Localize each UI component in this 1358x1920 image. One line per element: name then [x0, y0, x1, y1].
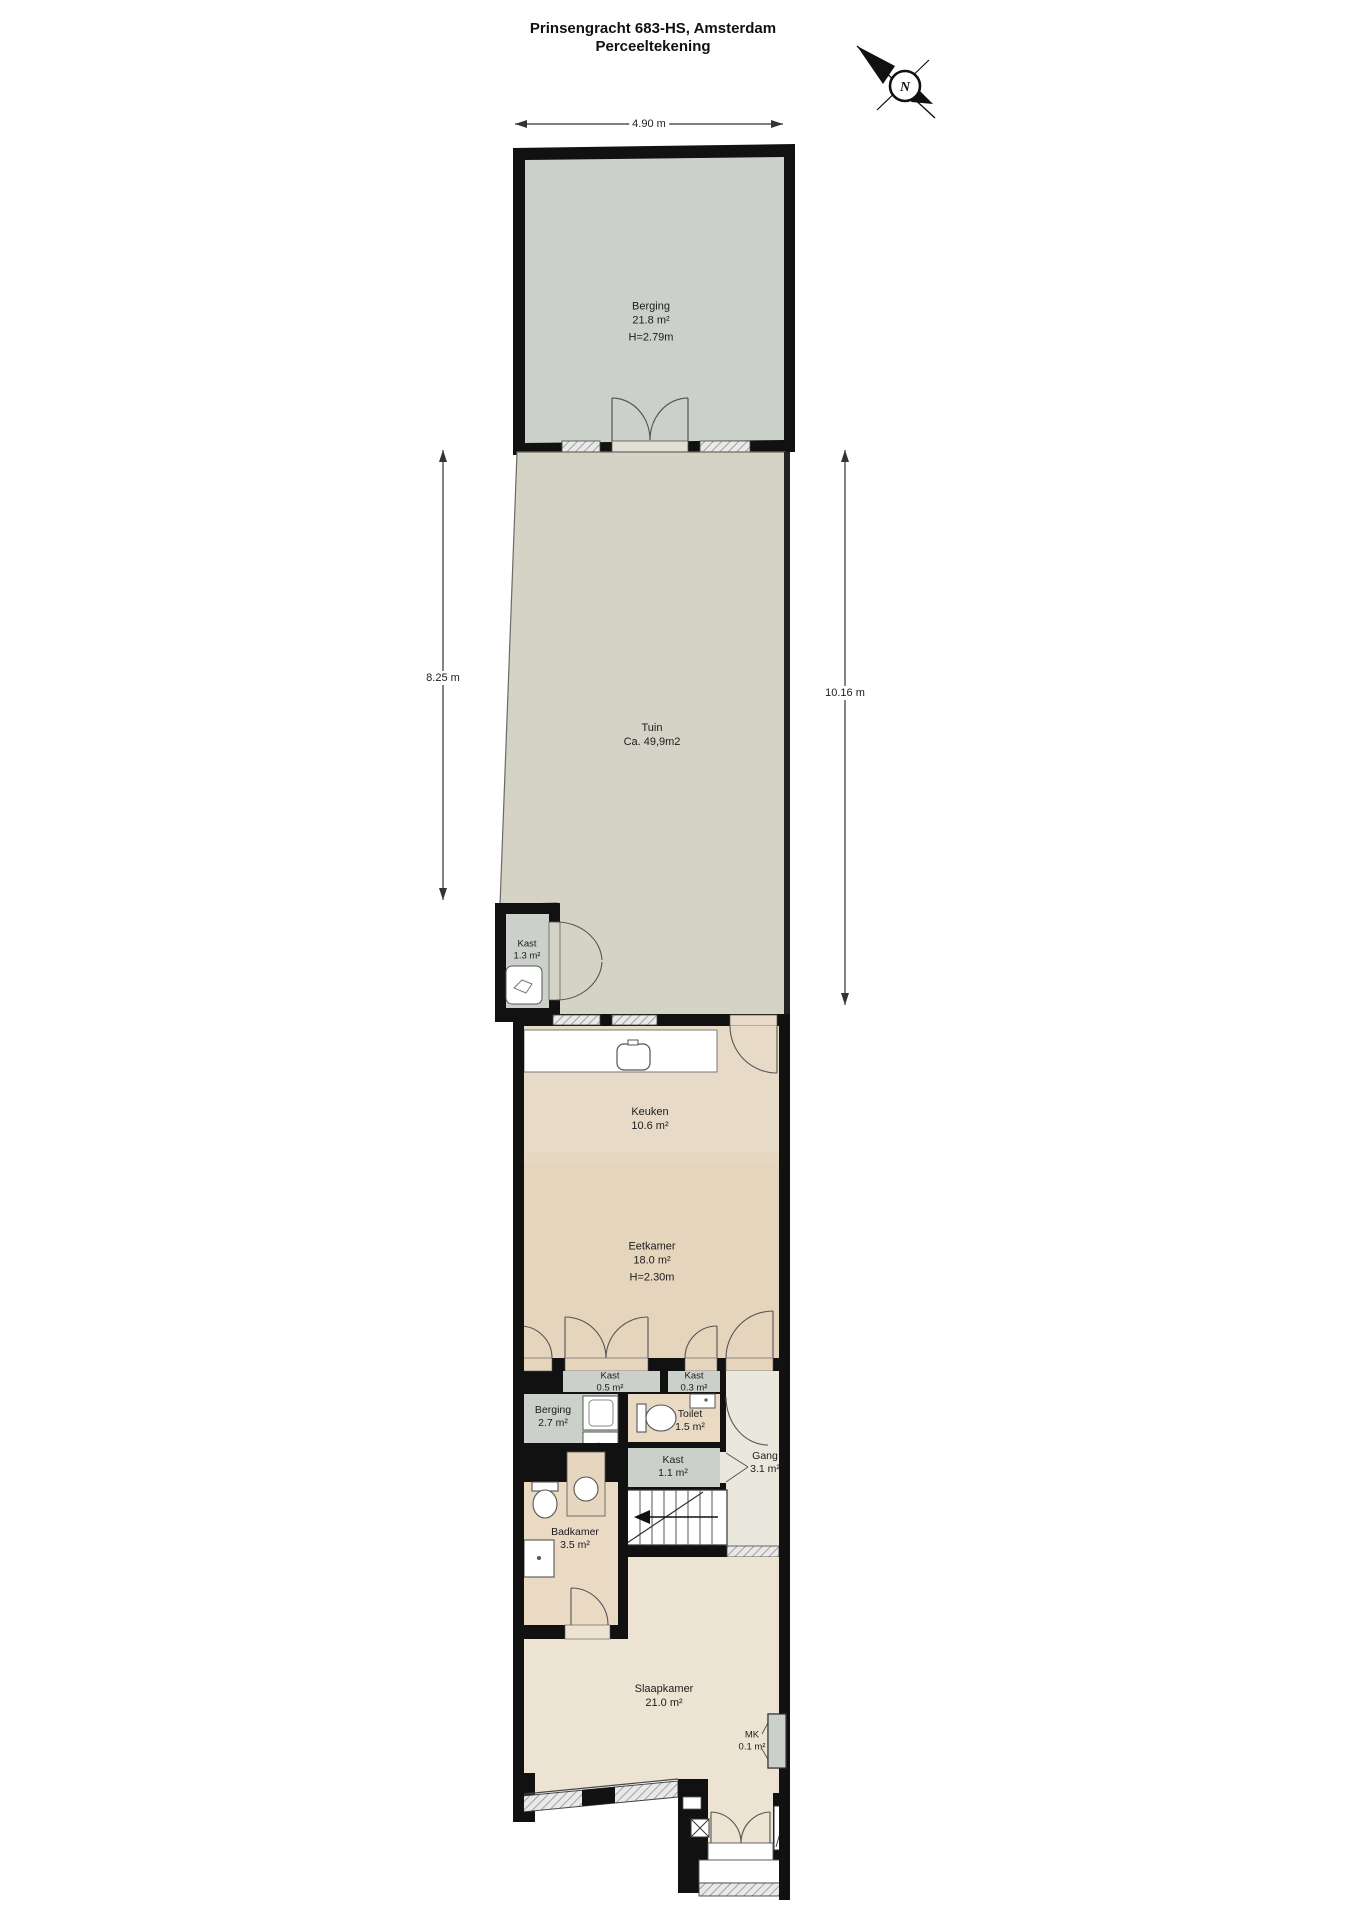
room-label-toilet: Toilet 1.5 m²	[675, 1408, 705, 1434]
room-label-badkamer: Badkamer 3.5 m²	[551, 1526, 599, 1552]
dimension-right-line	[841, 450, 849, 1005]
compass-letter: N	[899, 80, 911, 95]
kitchen-counter	[524, 1030, 717, 1072]
room-label-kast-03: Kast 0.3 m²	[681, 1371, 708, 1394]
toilet-icon	[637, 1404, 676, 1432]
bathroom-sink-icon	[574, 1477, 598, 1501]
room-label-gang: Gang 3.1 m²	[750, 1450, 780, 1476]
room-label-berging-2: Berging 2.7 m²	[535, 1404, 571, 1430]
entry-step	[699, 1860, 781, 1883]
sink-icon	[617, 1040, 650, 1070]
room-label-eetkamer: Eetkamer 18.0 m² H=2.30m	[628, 1240, 675, 1285]
house-top-wall	[513, 1014, 790, 1026]
doorbell-box	[683, 1797, 701, 1809]
dimension-left-label: 8.25 m	[423, 671, 463, 685]
bathroom-toilet-icon	[532, 1482, 558, 1518]
compass-icon: N	[857, 46, 935, 118]
staircase	[626, 1490, 727, 1545]
left-outer-wall	[513, 1014, 524, 1822]
page-title-line1: Prinsengracht 683-HS, Amsterdam	[530, 20, 776, 38]
shower-icon	[524, 1540, 554, 1577]
dimension-top-label: 4.90 m	[629, 117, 669, 131]
eetkamer-top-strip	[524, 1152, 779, 1163]
room-label-kast-11: Kast 1.1 m²	[658, 1454, 688, 1480]
room-label-keuken: Keuken 10.6 m²	[631, 1105, 668, 1133]
keuken-shape	[524, 1026, 779, 1158]
room-label-berging-top: Berging 21.8 m² H=2.79m	[629, 300, 674, 345]
room-label-kast-05: Kast 0.5 m²	[597, 1371, 624, 1394]
room-label-slaapkamer: Slaapkamer 21.0 m²	[635, 1682, 694, 1710]
room-label-mk: MK 0.1 m²	[739, 1730, 766, 1753]
page-title-line2: Perceeltekening	[595, 38, 710, 56]
window-x-box	[691, 1819, 709, 1837]
floor-plan-page: N Prinsengracht 683-HS, Amsterdam Percee…	[0, 0, 1358, 1920]
entry-window-strip	[699, 1883, 781, 1896]
room-label-kast-tuin: Kast 1.3 m²	[514, 939, 541, 962]
room-label-tuin: Tuin Ca. 49,9m2	[624, 721, 681, 749]
toilet-sink-icon	[690, 1394, 715, 1408]
dimension-right-label: 10.16 m	[822, 686, 868, 700]
floor-plan-drawing: N	[0, 0, 1358, 1920]
door-sill	[708, 1843, 773, 1860]
mk-niche-overlay	[768, 1714, 786, 1768]
washing-machine-icon	[506, 966, 542, 1004]
